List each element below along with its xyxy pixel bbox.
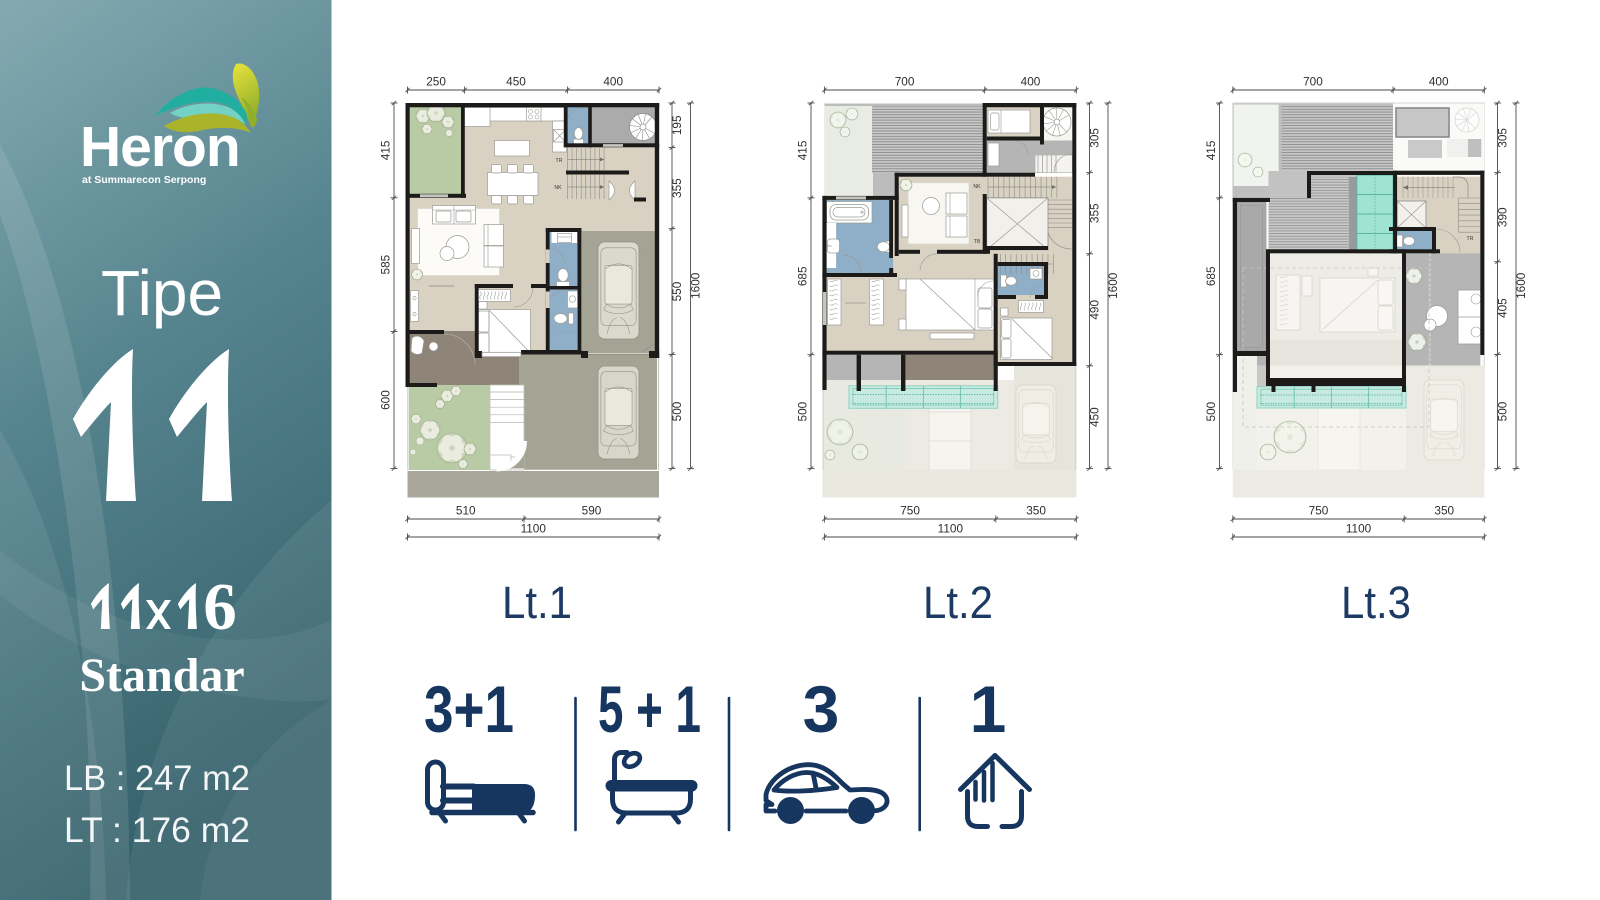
svg-text:NK: NK bbox=[973, 184, 981, 190]
svg-text:490: 490 bbox=[1088, 300, 1102, 320]
svg-text:600: 600 bbox=[379, 390, 393, 410]
svg-text:355: 355 bbox=[1088, 203, 1102, 223]
svg-text:355: 355 bbox=[670, 178, 684, 198]
svg-text:3: 3 bbox=[803, 672, 840, 746]
svg-text:TR: TR bbox=[1467, 236, 1474, 242]
svg-text:405: 405 bbox=[1496, 298, 1510, 318]
svg-text:400: 400 bbox=[603, 75, 623, 89]
svg-text:350: 350 bbox=[1434, 504, 1454, 518]
svg-text:LT : 176 m2: LT : 176 m2 bbox=[64, 811, 250, 850]
svg-text:195: 195 bbox=[670, 115, 684, 135]
svg-text:550: 550 bbox=[670, 281, 684, 301]
svg-text:1600: 1600 bbox=[689, 272, 703, 299]
svg-text:1600: 1600 bbox=[1106, 272, 1120, 299]
svg-text:5 + 1: 5 + 1 bbox=[598, 672, 701, 746]
svg-text:585: 585 bbox=[379, 254, 393, 274]
svg-text:450: 450 bbox=[1088, 407, 1102, 427]
svg-text:3+1: 3+1 bbox=[424, 672, 514, 746]
svg-text:750: 750 bbox=[1309, 504, 1329, 518]
svg-text:400: 400 bbox=[1021, 75, 1041, 89]
svg-text:Heron: Heron bbox=[80, 115, 240, 179]
svg-text:700: 700 bbox=[1303, 75, 1323, 89]
svg-text:LB : 247 m2: LB : 247 m2 bbox=[64, 759, 250, 798]
svg-text:685: 685 bbox=[796, 266, 810, 286]
svg-text:at Summarecon Serpong: at Summarecon Serpong bbox=[82, 174, 206, 186]
svg-text:450: 450 bbox=[506, 75, 526, 89]
svg-text:NK: NK bbox=[554, 185, 562, 191]
svg-text:Lt.1: Lt.1 bbox=[502, 577, 572, 628]
svg-text:6: 6 bbox=[203, 570, 237, 644]
svg-text:TR: TR bbox=[556, 158, 563, 164]
svg-text:305: 305 bbox=[1088, 128, 1102, 148]
svg-text:Lt.2: Lt.2 bbox=[923, 577, 993, 628]
svg-text:1100: 1100 bbox=[521, 522, 547, 536]
svg-text:Standar: Standar bbox=[79, 649, 244, 702]
svg-text:250: 250 bbox=[426, 75, 446, 89]
svg-text:1: 1 bbox=[970, 672, 1007, 746]
svg-text:Tipe: Tipe bbox=[101, 257, 223, 329]
svg-text:Lt.3: Lt.3 bbox=[1341, 577, 1411, 628]
svg-text:1100: 1100 bbox=[938, 522, 964, 536]
svg-text:350: 350 bbox=[1026, 504, 1046, 518]
svg-text:415: 415 bbox=[1204, 140, 1218, 160]
svg-text:685: 685 bbox=[1204, 266, 1218, 286]
svg-text:390: 390 bbox=[1496, 207, 1510, 227]
svg-text:500: 500 bbox=[670, 401, 684, 421]
svg-text:500: 500 bbox=[796, 401, 810, 421]
svg-text:700: 700 bbox=[895, 75, 915, 89]
svg-text:305: 305 bbox=[1496, 128, 1510, 148]
svg-text:415: 415 bbox=[379, 140, 393, 160]
svg-text:510: 510 bbox=[456, 504, 476, 518]
svg-text:500: 500 bbox=[1204, 401, 1218, 421]
svg-text:750: 750 bbox=[900, 504, 920, 518]
svg-text:590: 590 bbox=[582, 504, 602, 518]
svg-text:500: 500 bbox=[1496, 401, 1510, 421]
svg-text:TB: TB bbox=[974, 239, 981, 245]
svg-text:1600: 1600 bbox=[1514, 272, 1528, 299]
svg-text:415: 415 bbox=[796, 140, 810, 160]
svg-text:400: 400 bbox=[1429, 75, 1449, 89]
svg-text:1100: 1100 bbox=[1346, 522, 1372, 536]
